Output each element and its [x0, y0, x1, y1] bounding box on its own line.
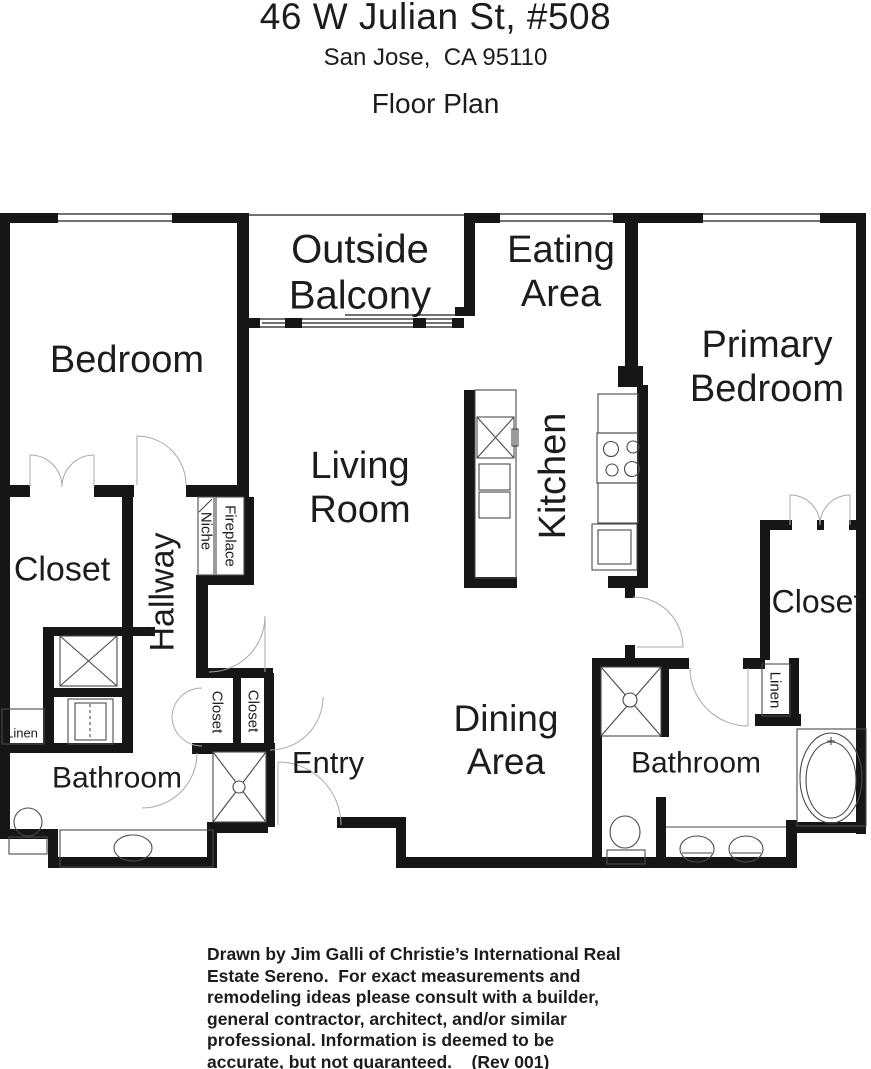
bathroom-right-door	[690, 668, 748, 726]
room-label-bedroom: Bedroom	[50, 338, 204, 382]
floor-plan-page: 46 W Julian St, #508 San Jose, CA 95110 …	[0, 0, 871, 1069]
hall-closet-doors	[172, 688, 202, 746]
shower-entry	[213, 752, 266, 822]
window-primary	[703, 214, 820, 222]
vanity-right	[666, 827, 786, 862]
room-label-linen-primary: Linen	[766, 672, 783, 709]
room-label-closet-hall-left: Closet	[208, 691, 225, 734]
bathtub	[797, 729, 866, 826]
room-label-dining-area: Dining Area	[454, 698, 559, 784]
room-label-living-room: Living Room	[309, 444, 410, 532]
room-label-niche: Niche	[197, 512, 214, 550]
room-label-entry: Entry	[292, 745, 364, 781]
room-label-bathroom-left: Bathroom	[52, 762, 182, 797]
kitchen-counter	[592, 394, 640, 570]
room-label-hallway: Hallway	[143, 532, 182, 651]
room-label-primary-bedroom: Primary Bedroom	[690, 323, 844, 411]
room-label-fireplace: Fireplace	[221, 505, 238, 567]
window-eating	[500, 214, 613, 222]
room-label-closet-hall-right: Closet	[244, 690, 261, 733]
room-label-bathroom-right: Bathroom	[631, 747, 761, 782]
window-bedroom	[58, 214, 172, 222]
room-label-eating-area: Eating Area	[507, 228, 615, 316]
disclaimer-text: Drawn by Jim Galli of Christie’s Interna…	[207, 944, 677, 1069]
room-label-linen-left: Linen	[6, 725, 38, 740]
room-label-closet-primary: Closet	[772, 583, 863, 620]
shower-hall	[60, 636, 117, 686]
primary-closet-doors	[790, 495, 850, 525]
hallway-door	[209, 616, 265, 672]
room-label-kitchen: Kitchen	[531, 413, 575, 540]
room-label-outside-balcony: Outside Balcony	[289, 227, 431, 320]
windows	[58, 214, 820, 328]
room-label-closet-left: Closet	[14, 550, 110, 589]
entry-closet-door	[270, 697, 323, 750]
bedroom-door	[137, 436, 186, 485]
bedroom-closet-doors	[30, 455, 94, 487]
primary-bedroom-door	[633, 597, 683, 647]
toilet-right	[607, 816, 645, 864]
floor-plan-drawing	[0, 0, 871, 1069]
washer-dryer	[68, 699, 113, 744]
kitchen-island	[475, 390, 518, 578]
shower-right	[601, 667, 661, 736]
